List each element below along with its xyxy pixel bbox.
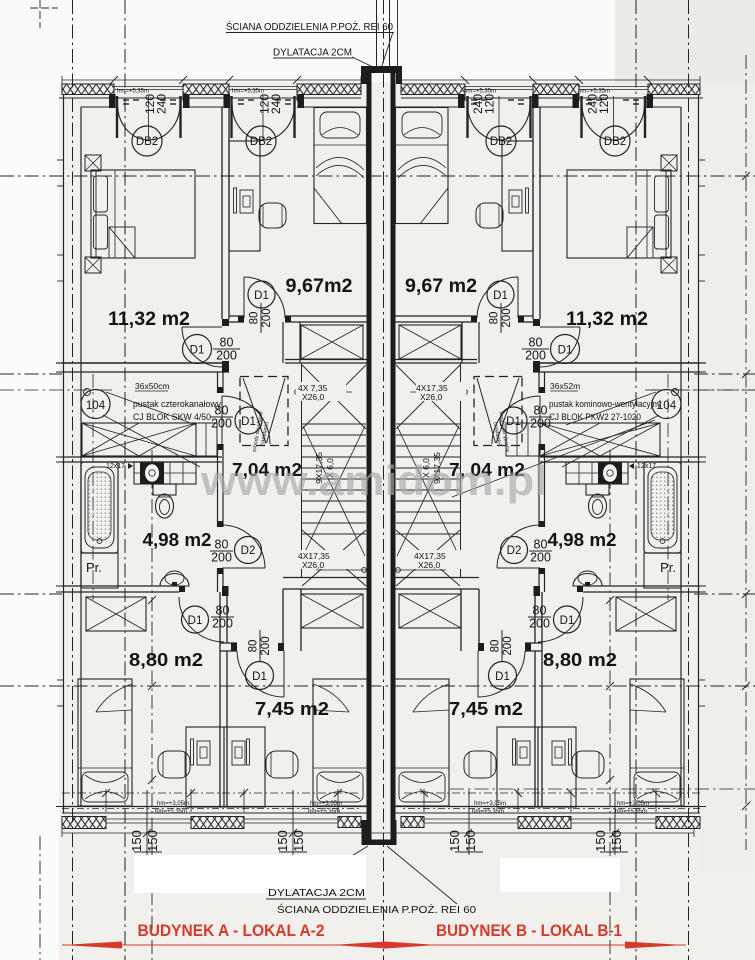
svg-text:80: 80 bbox=[215, 404, 229, 418]
svg-text:240: 240 bbox=[155, 94, 169, 114]
svg-text:D2: D2 bbox=[507, 545, 522, 557]
svg-text:hm=+3,05m: hm=+3,05m bbox=[617, 801, 649, 807]
svg-text:DB2: DB2 bbox=[250, 136, 272, 148]
svg-text:hm=+5,35m: hm=+5,35m bbox=[464, 89, 496, 95]
svg-text:11,32 m2: 11,32 m2 bbox=[108, 309, 190, 330]
svg-text:X26,0: X26,0 bbox=[418, 560, 440, 570]
svg-text:D1: D1 bbox=[493, 290, 508, 302]
svg-text:hm=+3,05m: hm=+3,05m bbox=[310, 801, 342, 807]
svg-text:ŚCIANA ODDZIELENIA P.POŻ. REI: ŚCIANA ODDZIELENIA P.POŻ. REI 60 bbox=[277, 903, 476, 916]
svg-text:150: 150 bbox=[145, 830, 160, 852]
svg-text:240: 240 bbox=[471, 94, 485, 114]
svg-text:200: 200 bbox=[211, 551, 232, 565]
svg-text:12x17: 12x17 bbox=[637, 463, 656, 470]
svg-text:80: 80 bbox=[533, 604, 547, 618]
svg-text:200: 200 bbox=[530, 551, 551, 565]
svg-text:ŚCIANA ODDZIELENIA P.POŻ. REI: ŚCIANA ODDZIELENIA P.POŻ. REI 60 bbox=[226, 20, 393, 33]
svg-text:200: 200 bbox=[501, 308, 513, 327]
svg-text:4,98 m2: 4,98 m2 bbox=[143, 530, 212, 550]
svg-text:8,80 m2: 8,80 m2 bbox=[129, 650, 203, 670]
svg-text:200: 200 bbox=[216, 349, 237, 363]
svg-text:240: 240 bbox=[586, 94, 600, 114]
svg-text:80: 80 bbox=[249, 312, 261, 325]
svg-text:150: 150 bbox=[291, 830, 306, 852]
svg-text:36x50cm: 36x50cm bbox=[135, 381, 170, 391]
svg-text:hm=+5,35m: hm=+5,35m bbox=[232, 89, 264, 95]
svg-text:DYLATACJA 2CM: DYLATACJA 2CM bbox=[268, 887, 365, 899]
svg-text:150: 150 bbox=[129, 830, 144, 852]
svg-text:80: 80 bbox=[534, 538, 548, 552]
svg-text:D1: D1 bbox=[558, 345, 573, 357]
svg-text:104: 104 bbox=[86, 400, 106, 412]
svg-text:150: 150 bbox=[593, 830, 608, 852]
svg-text:DYLATACJA 2CM: DYLATACJA 2CM bbox=[273, 47, 352, 59]
svg-text:hm=+5,35m: hm=+5,35m bbox=[155, 809, 187, 815]
svg-text:7,45 m2: 7,45 m2 bbox=[255, 699, 329, 719]
svg-text:9,67 m2: 9,67 m2 bbox=[405, 276, 477, 297]
svg-text:D2: D2 bbox=[241, 545, 256, 557]
svg-text:80: 80 bbox=[489, 312, 501, 325]
svg-text:80: 80 bbox=[215, 538, 229, 552]
svg-text:200: 200 bbox=[530, 417, 551, 431]
svg-text:DB2: DB2 bbox=[604, 136, 626, 148]
svg-text:DB2: DB2 bbox=[136, 136, 158, 148]
svg-text:200: 200 bbox=[502, 636, 514, 655]
svg-text:D1: D1 bbox=[188, 615, 203, 627]
svg-text:7,45 m2: 7,45 m2 bbox=[449, 699, 523, 719]
svg-text:80: 80 bbox=[216, 604, 230, 618]
svg-text:hm=+3,05m: hm=+3,05m bbox=[157, 801, 189, 807]
svg-text:150: 150 bbox=[447, 830, 462, 852]
svg-text:D1: D1 bbox=[495, 671, 510, 683]
svg-text:BUDYNEK B - LOKAL B-1: BUDYNEK B - LOKAL B-1 bbox=[436, 922, 622, 940]
svg-text:Pr.: Pr. bbox=[86, 560, 102, 575]
svg-text:D1: D1 bbox=[254, 290, 269, 302]
svg-text:D1: D1 bbox=[241, 416, 256, 428]
svg-text:80: 80 bbox=[490, 640, 502, 653]
svg-text:12x17: 12x17 bbox=[106, 463, 125, 470]
svg-text:150: 150 bbox=[275, 830, 290, 852]
svg-text:hm=+3,05m: hm=+3,05m bbox=[474, 801, 506, 807]
svg-text:DB2: DB2 bbox=[490, 136, 512, 148]
svg-text:D1: D1 bbox=[560, 615, 575, 627]
svg-text:pustak czterokanałowy: pustak czterokanałowy bbox=[133, 399, 221, 410]
svg-text:200: 200 bbox=[212, 617, 233, 631]
svg-text:hm=+5,35m: hm=+5,35m bbox=[472, 809, 504, 815]
svg-text:80: 80 bbox=[529, 336, 543, 350]
svg-text:pustak kominowo-wentylacyjny: pustak kominowo-wentylacyjny bbox=[549, 399, 661, 410]
svg-text:36x52m: 36x52m bbox=[550, 381, 580, 391]
svg-text:X26,0: X26,0 bbox=[302, 392, 324, 402]
svg-text:240: 240 bbox=[269, 94, 283, 114]
svg-text:80: 80 bbox=[248, 640, 260, 653]
svg-text:150: 150 bbox=[463, 830, 478, 852]
svg-text:200: 200 bbox=[260, 636, 272, 655]
svg-text:BUDYNEK A - LOKAL A-2: BUDYNEK A - LOKAL A-2 bbox=[138, 922, 325, 940]
svg-text:D1: D1 bbox=[506, 416, 521, 428]
svg-text:CJ BLOK PKW2 27-1020: CJ BLOK PKW2 27-1020 bbox=[549, 412, 641, 423]
svg-text:D1: D1 bbox=[252, 671, 267, 683]
svg-text:200: 200 bbox=[261, 308, 273, 327]
svg-text:11,32 m2: 11,32 m2 bbox=[566, 309, 648, 330]
svg-text:200: 200 bbox=[529, 617, 550, 631]
svg-text:200: 200 bbox=[211, 417, 232, 431]
svg-text:X26,0: X26,0 bbox=[302, 560, 324, 570]
svg-text:80: 80 bbox=[534, 404, 548, 418]
svg-text:hm=+5,35m: hm=+5,35m bbox=[615, 809, 647, 815]
svg-text:Pr.: Pr. bbox=[660, 560, 676, 575]
svg-text:D1: D1 bbox=[190, 345, 205, 357]
svg-text:8,80 m2: 8,80 m2 bbox=[543, 650, 617, 670]
svg-text:104: 104 bbox=[657, 400, 677, 412]
svg-text:9,67m2: 9,67m2 bbox=[286, 276, 353, 297]
svg-text:X26,0: X26,0 bbox=[420, 392, 442, 402]
svg-text:www.amidom.pl: www.amidom.pl bbox=[200, 457, 547, 504]
svg-text:4,98 m2: 4,98 m2 bbox=[548, 530, 617, 550]
svg-text:CJ BLOK SKW 4/50: CJ BLOK SKW 4/50 bbox=[133, 412, 211, 423]
svg-text:hm=+5,35m: hm=+5,35m bbox=[117, 89, 149, 95]
svg-text:150: 150 bbox=[609, 830, 624, 852]
svg-text:hm=+5,35m: hm=+5,35m bbox=[308, 809, 340, 815]
svg-text:200: 200 bbox=[525, 349, 546, 363]
svg-text:hm=+5,35m: hm=+5,35m bbox=[578, 89, 610, 95]
svg-text:80: 80 bbox=[220, 336, 234, 350]
